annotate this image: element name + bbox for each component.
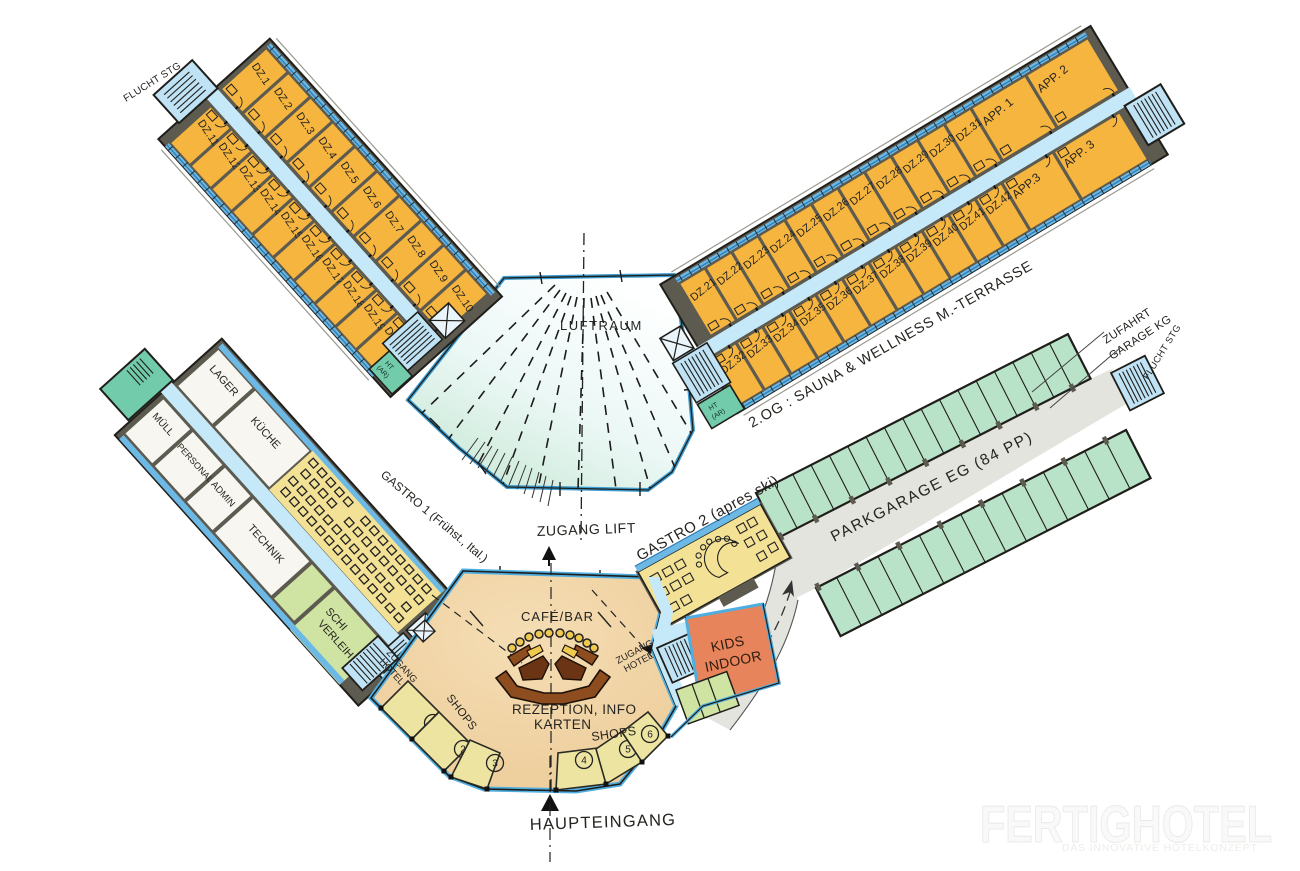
svg-text:REZEPTION, INFO: REZEPTION, INFO [512, 702, 637, 717]
svg-text:CAFÉ/BAR: CAFÉ/BAR [521, 609, 594, 624]
svg-text:3: 3 [492, 759, 498, 770]
svg-text:4: 4 [581, 756, 587, 767]
svg-text:LUFTRAUM: LUFTRAUM [560, 318, 643, 333]
svg-text:DAS INNOVATIVE HOTELKONZEPT: DAS INNOVATIVE HOTELKONZEPT [1062, 842, 1258, 854]
svg-text:5: 5 [625, 745, 631, 756]
svg-text:6: 6 [647, 730, 653, 741]
svg-text:KARTEN: KARTEN [534, 717, 592, 732]
